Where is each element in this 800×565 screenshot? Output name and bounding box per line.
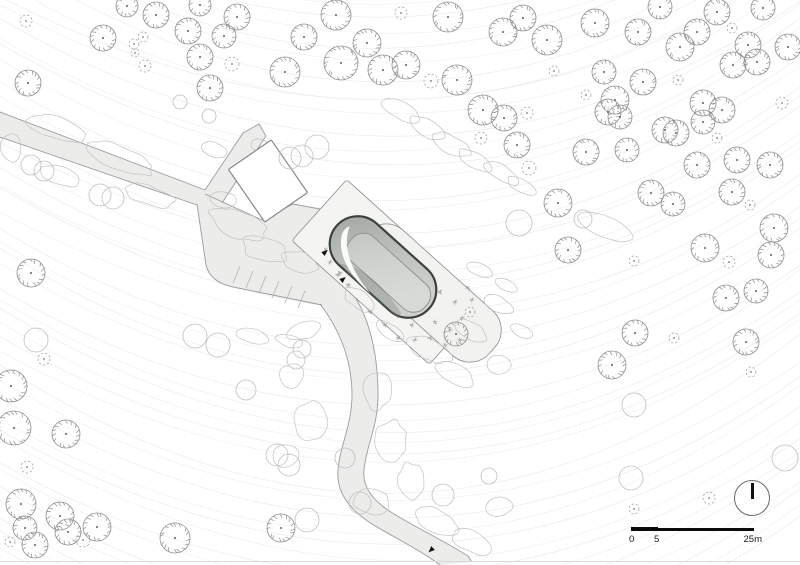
tree-deciduous xyxy=(625,19,651,45)
tree-small-dashed xyxy=(225,57,239,71)
tree-deciduous xyxy=(652,117,678,143)
tree-canopy-circle xyxy=(295,508,319,532)
tree-small-dashed xyxy=(723,256,735,268)
tree-small-dashed xyxy=(549,66,559,76)
tree-deciduous xyxy=(638,180,664,206)
tree-deciduous xyxy=(581,9,609,37)
tree-canopy-circle xyxy=(481,468,497,484)
tree-deciduous xyxy=(663,120,689,146)
tree-canopy-circle xyxy=(293,340,311,358)
tree-deciduous xyxy=(775,34,800,60)
drawing-frame-bottom xyxy=(0,561,800,562)
tree-deciduous xyxy=(6,489,36,519)
site-plan-page: { "drawing": { "type": "architectural-si… xyxy=(0,0,800,565)
tree-small-dashed xyxy=(38,353,50,365)
tree-small-dashed xyxy=(712,133,722,143)
site-plan-drawing xyxy=(0,0,800,565)
tree-small-dashed xyxy=(5,537,15,547)
bush xyxy=(236,328,269,344)
tree-canopy-circle xyxy=(506,210,532,236)
tree-deciduous xyxy=(751,0,775,20)
tree-small-dashed xyxy=(703,492,715,504)
tree-deciduous xyxy=(704,0,730,25)
scale-bar-segment-0-5 xyxy=(631,527,658,531)
tree-deciduous xyxy=(83,513,111,541)
tree-deciduous xyxy=(267,514,295,542)
road-bottom-edge xyxy=(0,137,197,205)
bush xyxy=(410,116,445,140)
tree-small-dashed xyxy=(129,39,139,49)
tree-deciduous xyxy=(661,192,685,216)
bush xyxy=(381,98,420,123)
tree-deciduous xyxy=(713,285,739,311)
tree-deciduous xyxy=(197,75,223,101)
tree-deciduous xyxy=(433,2,463,32)
tree-deciduous xyxy=(116,0,138,17)
tree-deciduous xyxy=(52,420,80,448)
tree-small-dashed xyxy=(475,132,487,144)
tree-small-dashed xyxy=(669,333,679,343)
scale-bar-label-0: 0 xyxy=(629,534,634,545)
tree-deciduous xyxy=(691,110,715,134)
tree-deciduous xyxy=(622,320,648,346)
tree-deciduous xyxy=(187,44,213,70)
scale-bar-label-25: 25m xyxy=(744,534,762,545)
tree-small-dashed xyxy=(727,23,737,33)
scale-bar-label-5: 5 xyxy=(654,534,659,545)
tree-small-dashed xyxy=(581,90,591,100)
tree-deciduous xyxy=(442,65,472,95)
tree-small-dashed xyxy=(21,461,33,473)
tree-deciduous xyxy=(757,152,783,178)
bush xyxy=(510,324,532,339)
tree-deciduous xyxy=(719,179,745,205)
bush xyxy=(432,132,471,156)
tree-deciduous xyxy=(573,139,599,165)
tree-small-dashed xyxy=(138,32,148,42)
bush xyxy=(286,321,320,340)
tree-deciduous xyxy=(758,242,784,268)
tree-deciduous xyxy=(143,2,169,28)
tree-deciduous xyxy=(735,32,761,58)
tree-deciduous xyxy=(353,29,381,57)
tree-canopy-circle xyxy=(89,184,111,206)
tree-deciduous xyxy=(491,105,517,131)
tree-deciduous xyxy=(510,5,536,31)
tree-deciduous xyxy=(544,189,572,217)
tree-small-dashed xyxy=(139,60,151,72)
north-arrow xyxy=(734,480,770,516)
tree-deciduous xyxy=(270,57,300,87)
bush xyxy=(486,497,513,516)
bush xyxy=(578,212,633,242)
bush xyxy=(435,361,473,387)
tree-small-dashed xyxy=(522,161,536,175)
tree-deciduous xyxy=(720,52,746,78)
tree-canopy-circle xyxy=(236,380,256,400)
tree-deciduous xyxy=(608,105,632,129)
tree-small-dashed xyxy=(776,97,788,109)
tree-small-dashed xyxy=(521,107,533,119)
tree-small-dashed xyxy=(629,504,639,514)
tree-deciduous xyxy=(212,24,236,48)
tree-deciduous xyxy=(392,51,420,79)
tree-deciduous xyxy=(15,70,41,96)
bush xyxy=(41,166,80,187)
scale-bar-segment-5-25 xyxy=(658,528,754,531)
tree-small-dashed xyxy=(424,74,438,88)
bush xyxy=(459,149,492,173)
north-arrow-needle xyxy=(751,483,754,500)
bush xyxy=(201,141,227,158)
tree-deciduous xyxy=(0,370,27,402)
tree-deciduous xyxy=(22,532,48,558)
tree-canopy-circle xyxy=(24,328,48,352)
tree-deciduous xyxy=(324,46,358,80)
tree-canopy-circle xyxy=(291,145,313,167)
tree-canopy-circle xyxy=(202,109,216,123)
tree-small-dashed xyxy=(20,15,32,27)
tree-deciduous xyxy=(724,147,750,173)
tree-small-dashed xyxy=(745,200,755,210)
tree-deciduous xyxy=(598,351,626,379)
tree-deciduous xyxy=(733,329,759,355)
tree-small-dashed xyxy=(673,75,683,85)
tree-deciduous xyxy=(504,132,530,158)
tree-deciduous xyxy=(744,279,768,303)
tree-deciduous xyxy=(760,214,788,242)
tree-canopy-circle xyxy=(432,484,454,506)
tree-deciduous xyxy=(666,33,694,61)
bush xyxy=(294,401,328,441)
tree-small-dashed xyxy=(395,7,407,19)
tree-deciduous xyxy=(17,259,45,287)
bush xyxy=(397,462,424,500)
tree-canopy-circle xyxy=(183,324,207,348)
tree-deciduous xyxy=(648,0,672,19)
tree-deciduous xyxy=(90,25,116,51)
tree-deciduous xyxy=(690,90,716,116)
tree-deciduous xyxy=(595,99,621,125)
scale-bar: 0 5 25m xyxy=(631,524,758,548)
bush xyxy=(484,162,519,186)
tree-deciduous xyxy=(555,237,581,263)
tree-deciduous xyxy=(592,60,616,84)
tree-small-dashed xyxy=(629,256,639,266)
tree-canopy-circle xyxy=(619,466,643,490)
tree-deciduous xyxy=(175,18,201,44)
tree-deciduous xyxy=(160,523,190,553)
tree-canopy-circle xyxy=(206,333,230,357)
bush xyxy=(375,419,407,462)
bush xyxy=(467,262,493,277)
tree-deciduous xyxy=(291,24,317,50)
tree-canopy-circle xyxy=(102,187,124,209)
